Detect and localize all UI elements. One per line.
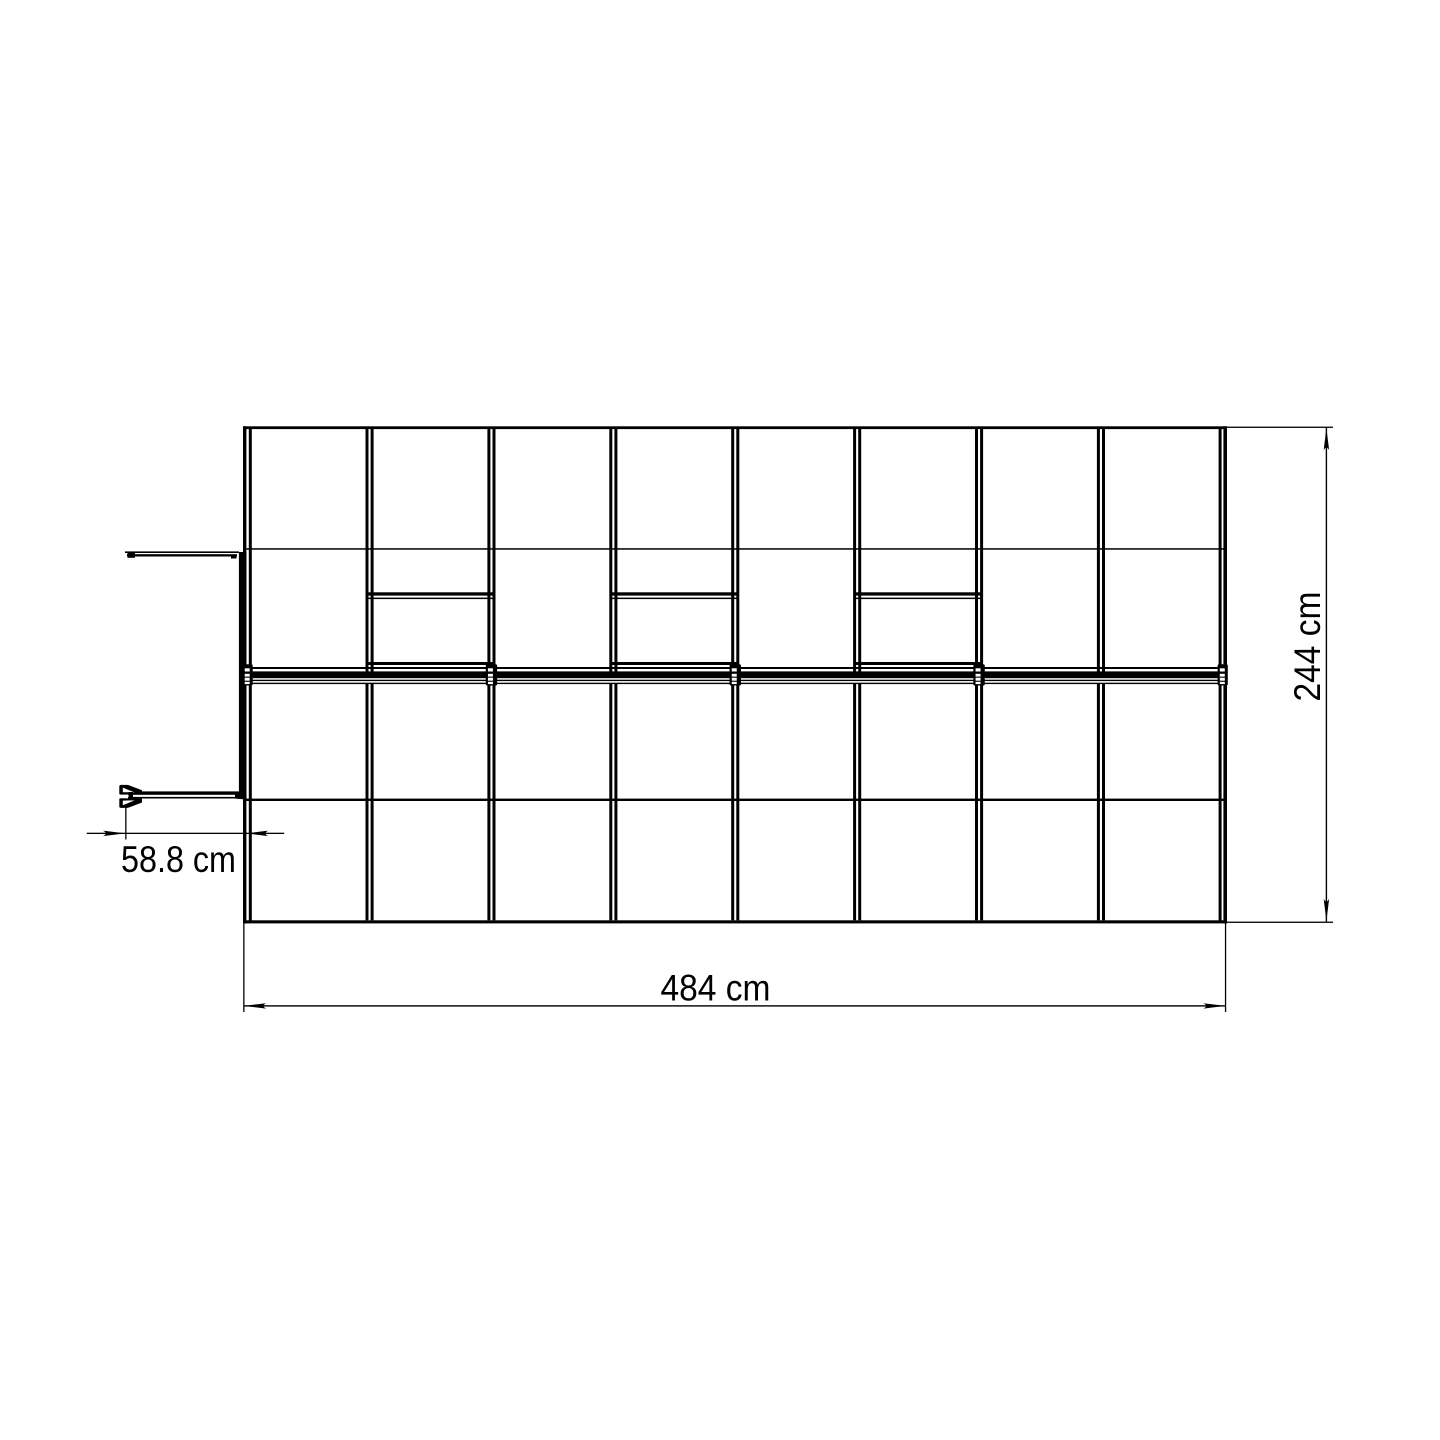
svg-text:58.8 cm: 58.8 cm	[121, 839, 236, 880]
svg-text:484 cm: 484 cm	[661, 968, 771, 1009]
svg-text:244 cm: 244 cm	[1287, 592, 1328, 702]
